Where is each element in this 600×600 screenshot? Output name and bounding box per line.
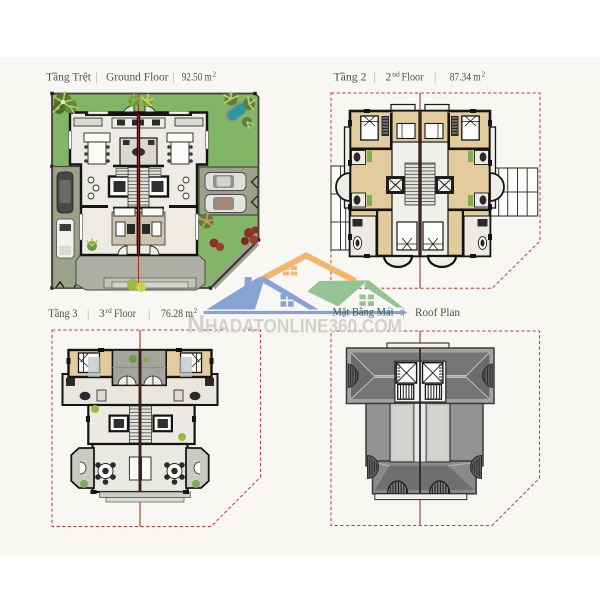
svg-text:|: | [87, 308, 89, 320]
svg-text:2: 2 [386, 72, 392, 84]
svg-text:Roof Plan: Roof Plan [415, 307, 460, 319]
svg-text:nd: nd [392, 70, 400, 79]
svg-text:3: 3 [99, 308, 105, 320]
svg-text:rd: rd [106, 306, 112, 315]
svg-text:92.50 m: 92.50 m [182, 72, 212, 84]
svg-text:|: | [173, 72, 175, 84]
svg-text:2: 2 [482, 70, 486, 79]
svg-text:|: | [434, 72, 436, 84]
svg-text:HADATONLINE360.COM: HADATONLINE360.COM [205, 316, 402, 338]
svg-text:Floor: Floor [402, 72, 424, 84]
svg-text:Tầng 3: Tầng 3 [48, 307, 77, 320]
svg-text:|: | [403, 307, 405, 319]
svg-text:Floor: Floor [114, 308, 136, 320]
svg-text:76.28 m: 76.28 m [161, 308, 193, 320]
svg-text:87.34 m: 87.34 m [450, 72, 481, 84]
svg-text:|: | [148, 308, 150, 320]
svg-text:Mặt Bằng Mái: Mặt Bằng Mái [333, 306, 394, 319]
svg-text:2: 2 [213, 70, 217, 79]
svg-text:Tầng 2: Tầng 2 [334, 71, 367, 84]
svg-text:Ground Floor: Ground Floor [106, 72, 169, 84]
svg-text:Tầng Trệt: Tầng Trệt [46, 71, 92, 84]
svg-text:|: | [374, 72, 376, 84]
svg-text:|: | [96, 72, 98, 84]
svg-text:2: 2 [194, 306, 198, 315]
